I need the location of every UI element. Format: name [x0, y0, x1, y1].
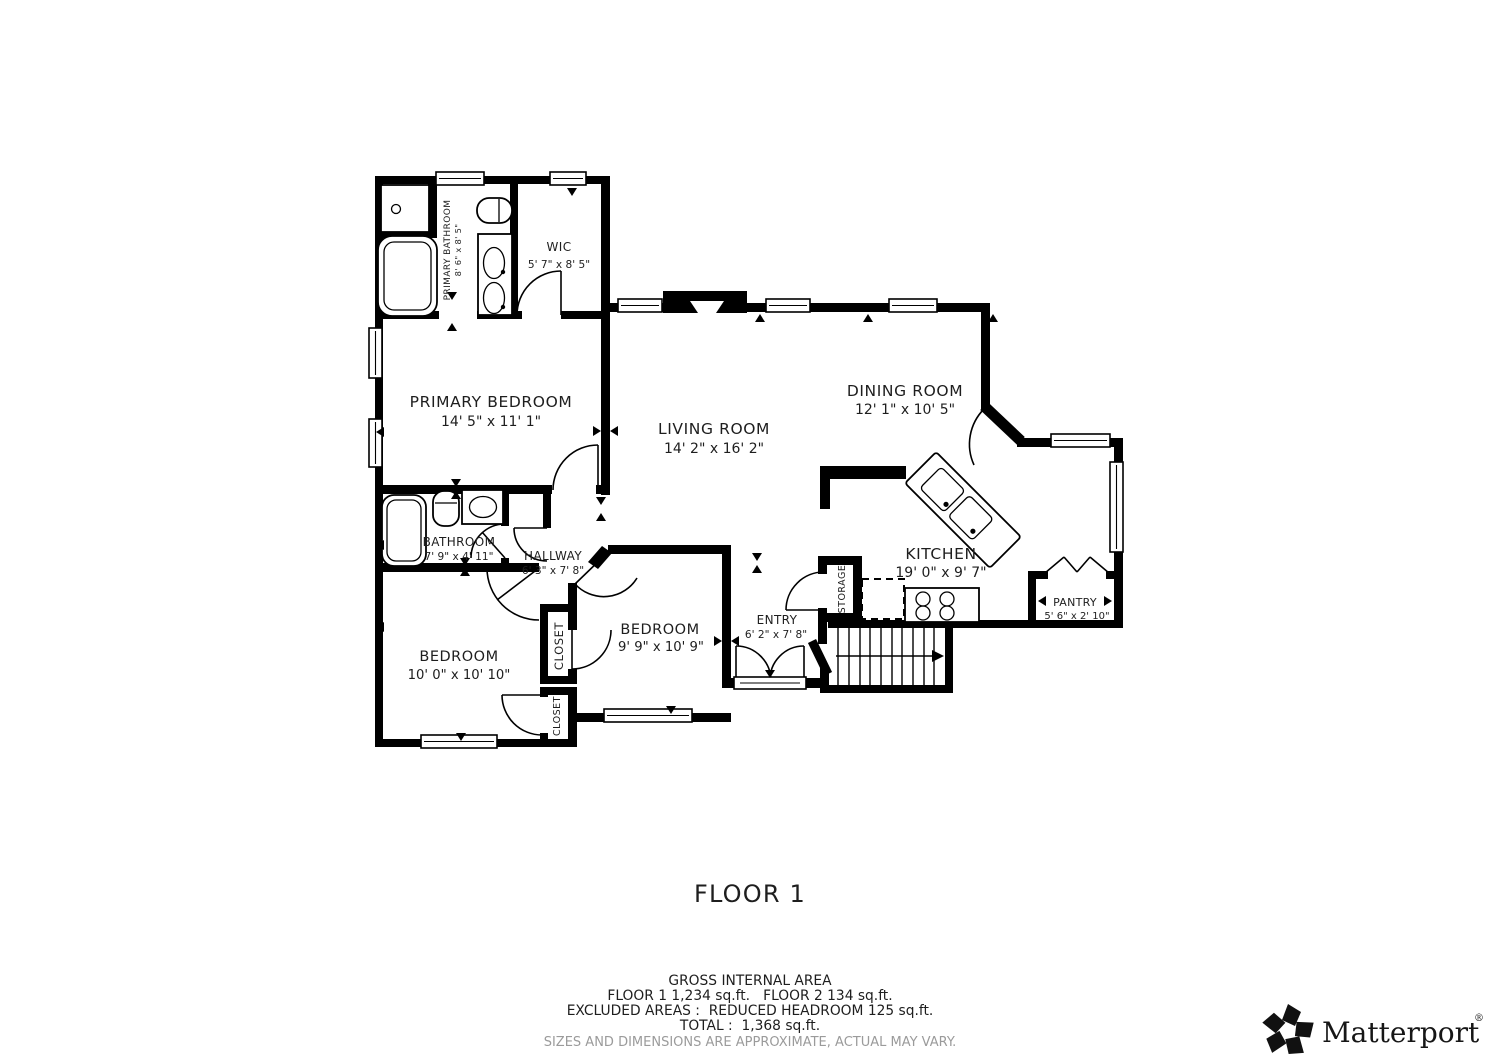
bathtub-icon [382, 495, 426, 566]
door-primary-bedroom [553, 445, 598, 490]
footer-total-area: TOTAL : 1,368 sq.ft. [679, 1018, 820, 1034]
room-label-pantry: PANTRY [1053, 596, 1097, 609]
door-entry-double [734, 646, 806, 689]
room-label-closet-lower: CLOSET [552, 696, 563, 736]
matterport-wordmark: Matterport [1322, 1016, 1480, 1049]
door-closet-lower [502, 695, 542, 735]
floorplan-page: PRIMARY BATHROOM 8' 6" x 8' 5" WIC 5' 7"… [0, 0, 1500, 1060]
door-storage [786, 572, 824, 610]
room-label-wic: WIC [547, 240, 572, 254]
captions: FLOOR 1 GROSS INTERNAL AREA FLOOR 1 1,23… [544, 880, 957, 1050]
window [604, 709, 692, 722]
doors [471, 271, 1109, 735]
room-dims-kitchen: 19' 0" x 9' 7" [895, 565, 986, 581]
room-label-living-room: LIVING ROOM [658, 420, 770, 438]
window [889, 299, 937, 312]
room-dims-dining-room: 12' 1" x 10' 5" [855, 402, 955, 418]
double-vanity-icon [478, 234, 512, 315]
window [550, 172, 586, 185]
room-label-entry: ENTRY [757, 613, 798, 627]
room-dims-bathroom: 7' 9" x 4' 11" [424, 551, 493, 563]
registered-trademark-icon: ® [1474, 1013, 1484, 1024]
footer-floor-areas: FLOOR 1 1,234 sq.ft. FLOOR 2 134 sq.ft. [607, 988, 892, 1004]
sink-icon [462, 490, 503, 524]
room-label-dining-room: DINING ROOM [847, 382, 963, 400]
room-dims-bedroom-left: 10' 0" x 10' 10" [408, 668, 511, 683]
matterport-logo: Matterport ® [1260, 1004, 1484, 1060]
matterport-pinwheel-icon [1260, 1004, 1317, 1060]
room-label-bathroom: BATHROOM [423, 535, 496, 549]
room-label-primary-bathroom: PRIMARY BATHROOM [443, 200, 453, 301]
room-dims-entry: 6' 2" x 7' 8" [745, 629, 807, 641]
room-label-hallway: HALLWAY [524, 549, 582, 563]
footer-excluded-areas: EXCLUDED AREAS : REDUCED HEADROOM 125 sq… [567, 1003, 934, 1019]
stove-icon [905, 588, 979, 622]
window [436, 172, 484, 185]
stairs-direction-arrow [836, 650, 944, 662]
window [369, 419, 382, 467]
room-dims-living-room: 14' 2" x 16' 2" [664, 441, 764, 457]
floorplan-svg: PRIMARY BATHROOM 8' 6" x 8' 5" WIC 5' 7"… [0, 0, 1500, 1060]
room-dims-primary-bedroom: 14' 5" x 11' 1" [441, 414, 541, 430]
room-label-primary-bedroom: PRIMARY BEDROOM [410, 393, 573, 411]
stairs [836, 628, 944, 685]
room-dims-pantry: 5' 6" x 2' 10" [1044, 611, 1109, 622]
room-dims-wic: 5' 7" x 8' 5" [528, 259, 590, 271]
window [618, 299, 662, 312]
room-dims-bedroom-right: 9' 9" x 10' 9" [618, 640, 704, 655]
window [1051, 434, 1110, 447]
room-dims-hallway: 6' 3" x 7' 8" [522, 565, 584, 577]
room-dims-primary-bathroom: 8' 6" x 8' 5" [453, 224, 463, 277]
floor-title: FLOOR 1 [694, 880, 806, 908]
toilet-icon [477, 198, 512, 223]
bathtub-icon [378, 236, 437, 316]
room-label-kitchen: KITCHEN [905, 545, 976, 563]
door-bedroom-right [575, 557, 637, 597]
shower-icon [381, 185, 429, 232]
room-label-bedroom-left: BEDROOM [419, 649, 498, 665]
door-pantry-french [1045, 557, 1109, 573]
door-closet-upper [572, 630, 611, 669]
window [369, 328, 382, 378]
room-label-closet-upper: CLOSET [552, 621, 566, 670]
refrigerator-space-icon [862, 579, 904, 619]
footer-gross-area: GROSS INTERNAL AREA [668, 973, 832, 989]
window [1110, 462, 1123, 552]
window [766, 299, 810, 312]
door-wic [517, 271, 561, 315]
room-label-storage: STORAGE [837, 565, 848, 614]
footer-disclaimer: SIZES AND DIMENSIONS ARE APPROXIMATE, AC… [544, 1035, 957, 1050]
room-label-bedroom-right: BEDROOM [620, 622, 699, 638]
